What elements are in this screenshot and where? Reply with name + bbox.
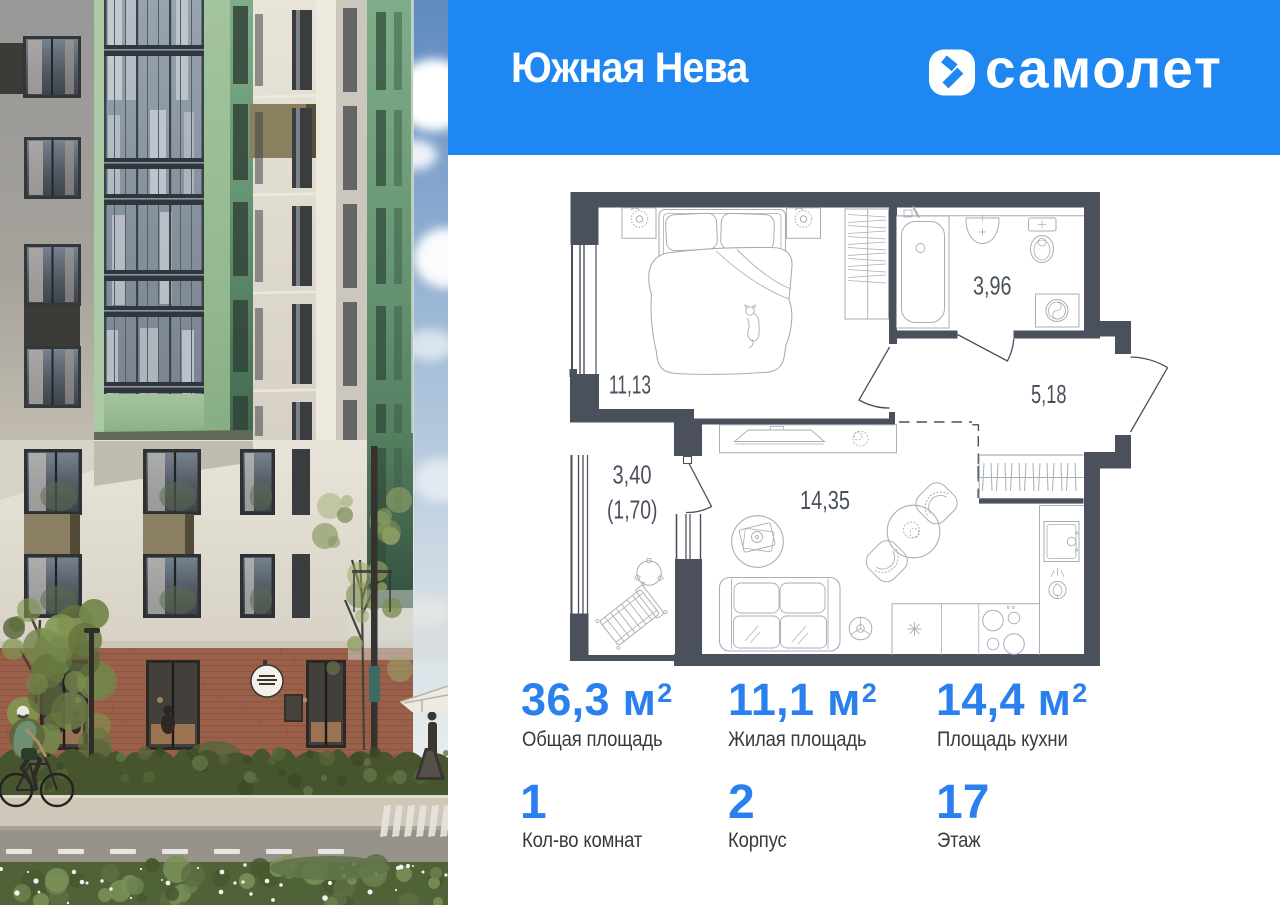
svg-text:3,40: 3,40 xyxy=(613,460,652,490)
svg-text:5,18: 5,18 xyxy=(1031,379,1067,409)
svg-text:(1,70): (1,70) xyxy=(607,495,658,525)
svg-text:11,13: 11,13 xyxy=(609,370,651,400)
svg-text:3,96: 3,96 xyxy=(973,271,1012,301)
svg-text:самолет: самолет xyxy=(985,38,1223,100)
svg-text:14,35: 14,35 xyxy=(800,485,850,515)
